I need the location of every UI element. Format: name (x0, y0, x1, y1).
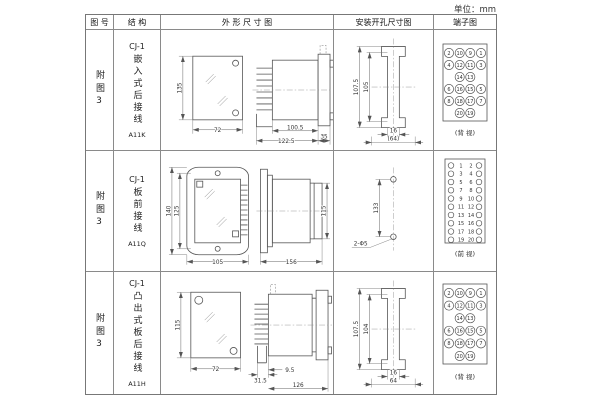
row3-install-drawing: 107.5 104 16 64 (334, 272, 434, 394)
svg-text:15: 15 (458, 221, 464, 227)
series-label: CJ-1 (129, 42, 145, 51)
row3-fig-no: 附图3 (86, 272, 114, 394)
svg-text:15: 15 (467, 329, 473, 335)
row3-structure: CJ-1 凸出式板后接线 A11H (114, 272, 161, 394)
dim-step-depth: 9.5 (285, 368, 294, 374)
svg-text:16: 16 (468, 221, 474, 227)
spec-table: 图 号 结 构 外 形 尺 寸 图 安装开孔尺寸图 端子图 附图3 CJ-1 嵌… (85, 14, 497, 395)
svg-text:14: 14 (457, 74, 463, 80)
svg-text:13: 13 (458, 212, 464, 218)
dim-front-width: 72 (212, 367, 220, 373)
dim-inner-height: 104 (364, 323, 370, 334)
dim-side-length: 156 (286, 259, 297, 265)
svg-text:8: 8 (469, 188, 472, 194)
svg-text:19: 19 (458, 237, 464, 243)
dim-side-height: 115 (322, 205, 328, 216)
svg-text:16: 16 (457, 86, 463, 92)
header-terminal: 端子图 (434, 15, 496, 30)
svg-text:4: 4 (447, 62, 450, 68)
svg-text:19: 19 (467, 110, 473, 116)
dim-body-depth: 100.5 (287, 125, 304, 131)
svg-text:20: 20 (457, 354, 463, 360)
header-structure: 结 构 (114, 15, 161, 30)
terminal-caption: (背 视) (455, 128, 475, 137)
svg-text:14: 14 (468, 212, 474, 218)
terminal-drawing-a11h: 2109141211314136161558181772019 (背 视) (434, 272, 496, 394)
row1-terminal-drawing: 2109141211314136161558181772019 (背 视) (434, 30, 496, 151)
row1-fig-no: 附图3 (86, 30, 114, 151)
row3-outline-drawing: 115 72 9.5 31.5 126 (161, 272, 334, 394)
svg-text:2: 2 (447, 50, 450, 56)
row2-install-drawing: 133 2-Φ5 (334, 151, 434, 272)
outline-drawing-a11k: 135 72 100.5 122.5 35 (161, 30, 333, 151)
svg-text:7: 7 (479, 341, 482, 347)
svg-text:5: 5 (459, 179, 462, 185)
svg-text:15: 15 (467, 86, 473, 92)
terminal-grid: 2109141211314136161558181772019 (444, 48, 485, 117)
svg-text:16: 16 (457, 329, 463, 335)
svg-text:17: 17 (467, 98, 473, 104)
dim-inner-height: 125 (174, 205, 180, 216)
dim-front-width: 72 (214, 127, 222, 133)
structure-label: 凸出式板后接线 (130, 291, 143, 375)
svg-text:10: 10 (457, 291, 463, 297)
dim-pin-depth: 31.5 (254, 379, 267, 385)
svg-text:13: 13 (467, 316, 473, 322)
svg-text:18: 18 (457, 98, 463, 104)
svg-text:8: 8 (447, 98, 450, 104)
dim-outer-height: 107.5 (354, 78, 360, 95)
terminal-caption: (背 视) (455, 372, 475, 381)
dim-outer-height: 107.5 (354, 320, 360, 337)
fig-no-label: 附图3 (93, 70, 106, 110)
svg-text:2: 2 (469, 163, 472, 169)
svg-text:5: 5 (479, 329, 482, 335)
svg-text:3: 3 (479, 303, 482, 309)
dim-front-height: 115 (175, 319, 181, 330)
dim-slot-width: 16 (390, 128, 398, 134)
structure-label: 板前接线 (131, 187, 144, 235)
svg-text:14: 14 (457, 316, 463, 322)
dim-overall-width: (64) (388, 136, 400, 142)
model-label: A11Q (128, 240, 146, 248)
svg-text:7: 7 (479, 98, 482, 104)
series-label: CJ-1 (129, 279, 145, 288)
svg-text:9: 9 (469, 291, 472, 297)
svg-text:10: 10 (457, 50, 463, 56)
series-label: CJ-1 (129, 175, 145, 184)
svg-text:18: 18 (468, 229, 474, 235)
terminal-grid: 1234567891011121314151617181920 (448, 162, 482, 243)
fig-no-label: 附图3 (93, 313, 106, 353)
install-drawing-a11k: 107.5 105 16 (64) (334, 30, 433, 151)
dim-outer-height: 140 (166, 205, 172, 216)
svg-text:5: 5 (479, 86, 482, 92)
svg-text:18: 18 (457, 341, 463, 347)
svg-text:9: 9 (459, 196, 462, 202)
svg-text:11: 11 (458, 204, 464, 210)
terminal-drawing-a11k: 2109141211314136161558181772019 (背 视) (434, 30, 496, 151)
dim-hole-label: 2-Φ5 (354, 241, 368, 247)
outline-drawing-a11h: 115 72 9.5 31.5 126 (161, 272, 333, 394)
row1-structure: CJ-1 嵌入式后接线 A11K (114, 30, 161, 151)
row3-terminal-drawing: 2109141211314136161558181772019 (背 视) (434, 272, 496, 394)
row2-outline-drawing: 140 125 105 156 115 (161, 151, 334, 272)
svg-text:1: 1 (479, 50, 482, 56)
install-drawing-a11q: 133 2-Φ5 (334, 151, 433, 272)
header-outline: 外 形 尺 寸 图 (161, 15, 334, 30)
svg-text:17: 17 (458, 229, 464, 235)
dim-inner-height: 105 (364, 81, 370, 92)
terminal-grid: 2109141211314136161558181772019 (444, 288, 485, 360)
svg-text:3: 3 (479, 62, 482, 68)
svg-text:1: 1 (479, 291, 482, 297)
svg-text:7: 7 (459, 188, 462, 194)
svg-text:12: 12 (457, 62, 463, 68)
row1-outline-drawing: 135 72 100.5 122.5 35 (161, 30, 334, 151)
header-install: 安装开孔尺寸图 (334, 15, 434, 30)
svg-text:6: 6 (469, 179, 472, 185)
svg-text:11: 11 (467, 303, 473, 309)
row2-terminal-drawing: 1234567891011121314151617181920 (前 视) (434, 151, 496, 272)
svg-text:19: 19 (467, 354, 473, 360)
svg-text:17: 17 (467, 341, 473, 347)
dim-front-width: 105 (212, 259, 223, 265)
svg-text:6: 6 (447, 86, 450, 92)
header-fig-no: 图 号 (86, 15, 114, 30)
structure-label: 嵌入式后接线 (130, 54, 143, 126)
svg-text:20: 20 (468, 237, 474, 243)
svg-text:12: 12 (457, 303, 463, 309)
svg-text:3: 3 (459, 171, 462, 177)
row1-install-drawing: 107.5 105 16 (64) (334, 30, 434, 151)
svg-text:2: 2 (447, 291, 450, 297)
dim-total-depth: 122.5 (278, 139, 295, 145)
dim-body-depth: 126 (293, 383, 304, 389)
svg-text:12: 12 (468, 204, 474, 210)
svg-text:11: 11 (467, 62, 473, 68)
svg-text:4: 4 (447, 303, 450, 309)
svg-text:6: 6 (447, 329, 450, 335)
dim-hole-spacing: 133 (374, 202, 380, 213)
svg-text:13: 13 (467, 74, 473, 80)
row2-structure: CJ-1 板前接线 A11Q (114, 151, 161, 272)
terminal-caption: (前 视) (455, 249, 475, 258)
fig-no-label: 附图3 (93, 191, 106, 231)
dim-overall-width: 64 (390, 379, 398, 385)
install-drawing-a11h: 107.5 104 16 64 (334, 272, 433, 394)
svg-text:10: 10 (468, 196, 474, 202)
dim-flange-depth: 35 (320, 134, 328, 140)
svg-text:20: 20 (457, 110, 463, 116)
svg-text:4: 4 (469, 171, 472, 177)
model-label: A11K (129, 131, 146, 139)
terminal-drawing-a11q: 1234567891011121314151617181920 (前 视) (434, 151, 496, 272)
row2-fig-no: 附图3 (86, 151, 114, 272)
dim-front-height: 135 (177, 82, 183, 93)
model-label: A11H (128, 380, 146, 388)
dim-slot-width: 16 (390, 371, 398, 377)
svg-text:9: 9 (469, 50, 472, 56)
svg-text:8: 8 (447, 341, 450, 347)
outline-drawing-a11q: 140 125 105 156 115 (161, 151, 333, 272)
svg-text:1: 1 (459, 163, 462, 169)
